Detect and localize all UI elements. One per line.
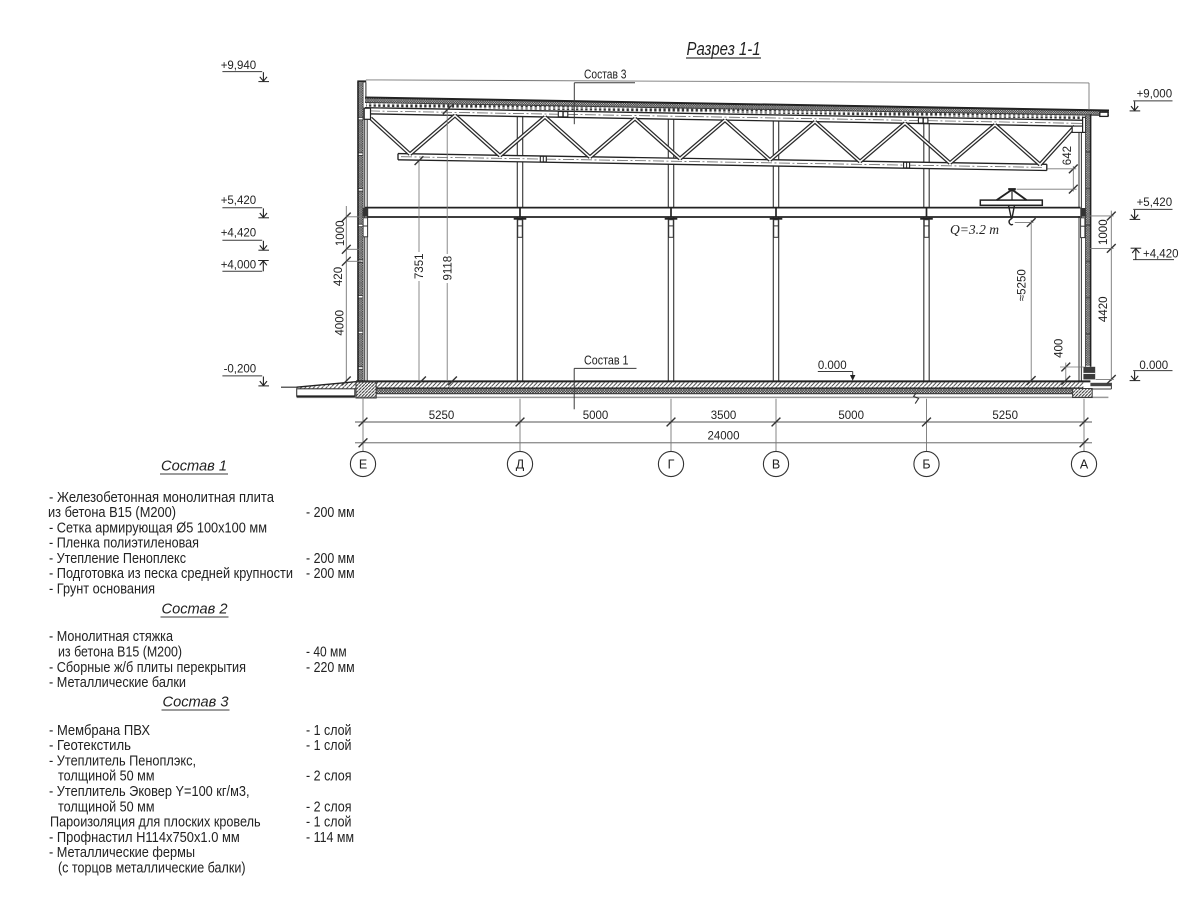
svg-text:420: 420 [333,267,345,286]
svg-text:- Металлические балки: - Металлические балки [49,675,186,691]
svg-text:+4,000: +4,000 [221,260,257,272]
svg-text:+5,420: +5,420 [1137,197,1173,209]
svg-text:642: 642 [1062,146,1074,165]
svg-text:- Утепление Пеноплекс: - Утепление Пеноплекс [49,551,186,567]
svg-text:5000: 5000 [838,410,864,422]
svg-text:- 220 мм: - 220 мм [306,660,355,676]
svg-text:- Монолитная стяжка: - Монолитная стяжка [49,629,173,645]
svg-text:- Мембрана ПВХ: - Мембрана ПВХ [49,723,150,739]
svg-text:Состав 2: Состав 2 [162,601,229,618]
svg-text:- 200 мм: - 200 мм [306,505,355,521]
svg-text:Состав 1: Состав 1 [584,353,629,368]
svg-text:1000: 1000 [1098,219,1110,245]
svg-text:4420: 4420 [1098,297,1110,323]
svg-text:- 1 слой: - 1 слой [306,738,352,754]
svg-text:(с торцов металлические балки): (с торцов металлические балки) [58,861,246,877]
svg-text:+4,420: +4,420 [1143,249,1179,261]
svg-text:- Сетка армирующая Ø5 100х100: - Сетка армирующая Ø5 100х100 мм [49,520,267,536]
svg-text:- Утеплитель Эковер Y=100 кг/м: - Утеплитель Эковер Y=100 кг/м3, [49,784,250,800]
svg-text:5250: 5250 [429,410,455,422]
svg-text:+9,940: +9,940 [221,60,257,72]
svg-text:5000: 5000 [583,410,609,422]
svg-text:- 1 слой: - 1 слой [306,815,352,831]
svg-text:+9,000: +9,000 [1137,89,1173,101]
svg-text:- Металлические фермы: - Металлические фермы [49,845,195,861]
svg-text:Состав 3: Состав 3 [163,694,230,711]
svg-text:Q=3.2 т: Q=3.2 т [950,222,999,237]
svg-text:7351: 7351 [414,254,426,280]
svg-text:400: 400 [1054,339,1066,358]
svg-text:≈5250: ≈5250 [1016,269,1028,301]
svg-text:толщиной 50 мм: толщиной 50 мм [58,769,155,785]
svg-text:- Геотекстиль: - Геотекстиль [49,738,131,754]
svg-text:3500: 3500 [711,410,737,422]
svg-text:- 2 слоя: - 2 слоя [306,769,352,785]
svg-text:- Железобетонная монолитная п: - Железобетонная монолитная плита [49,490,274,506]
svg-text:- 200 мм: - 200 мм [306,551,355,567]
svg-text:4000: 4000 [334,310,346,336]
svg-text:- Утеплитель Пеноплэкс,: - Утеплитель Пеноплэкс, [49,753,196,769]
svg-text:- 2 слоя: - 2 слоя [306,799,352,815]
svg-text:- Грунт основания: - Грунт основания [49,582,155,598]
svg-text:толщиной 50 мм: толщиной 50 мм [58,799,155,815]
svg-text:Разрез 1-1: Разрез 1-1 [687,38,761,59]
svg-text:+4,420: +4,420 [221,228,257,240]
svg-text:А: А [1080,457,1089,471]
svg-text:- 40 мм: - 40 мм [306,645,347,661]
svg-text:9118: 9118 [442,256,454,281]
svg-text:Состав 3: Состав 3 [584,67,627,82]
svg-text:0.000: 0.000 [818,360,847,372]
svg-text:+5,420: +5,420 [221,195,257,207]
svg-text:5250: 5250 [992,410,1018,422]
svg-text:Е: Е [359,457,367,471]
svg-text:Пароизоляция для плоских крове: Пароизоляция для плоских кровель [50,815,261,831]
svg-text:Б: Б [922,457,930,471]
svg-text:В: В [772,457,780,471]
svg-text:Состав 1: Состав 1 [161,458,227,475]
svg-text:Г: Г [668,457,675,471]
svg-text:1000: 1000 [335,221,347,247]
svg-text:Д: Д [516,457,525,471]
svg-text:из бетона В15 (М200): из бетона В15 (М200) [58,645,182,661]
svg-text:24000: 24000 [708,431,740,443]
svg-text:- Подготовка из песка средней: - Подготовка из песка средней крупности [49,566,293,582]
svg-text:- 200 мм: - 200 мм [306,566,355,582]
svg-text:- Сборные ж/б плиты перекрытия: - Сборные ж/б плиты перекрытия [49,660,246,676]
svg-text:- 114 мм: - 114 мм [306,830,354,846]
svg-text:- Пленка полиэтиленовая: - Пленка полиэтиленовая [49,536,199,552]
svg-text:- 1 слой: - 1 слой [306,723,352,739]
svg-text:-0,200: -0,200 [224,363,257,375]
svg-text:- Профнастил Н114х750х1.0 мм: - Профнастил Н114х750х1.0 мм [49,830,240,846]
svg-text:из бетона В15 (М200): из бетона В15 (М200) [48,505,176,521]
